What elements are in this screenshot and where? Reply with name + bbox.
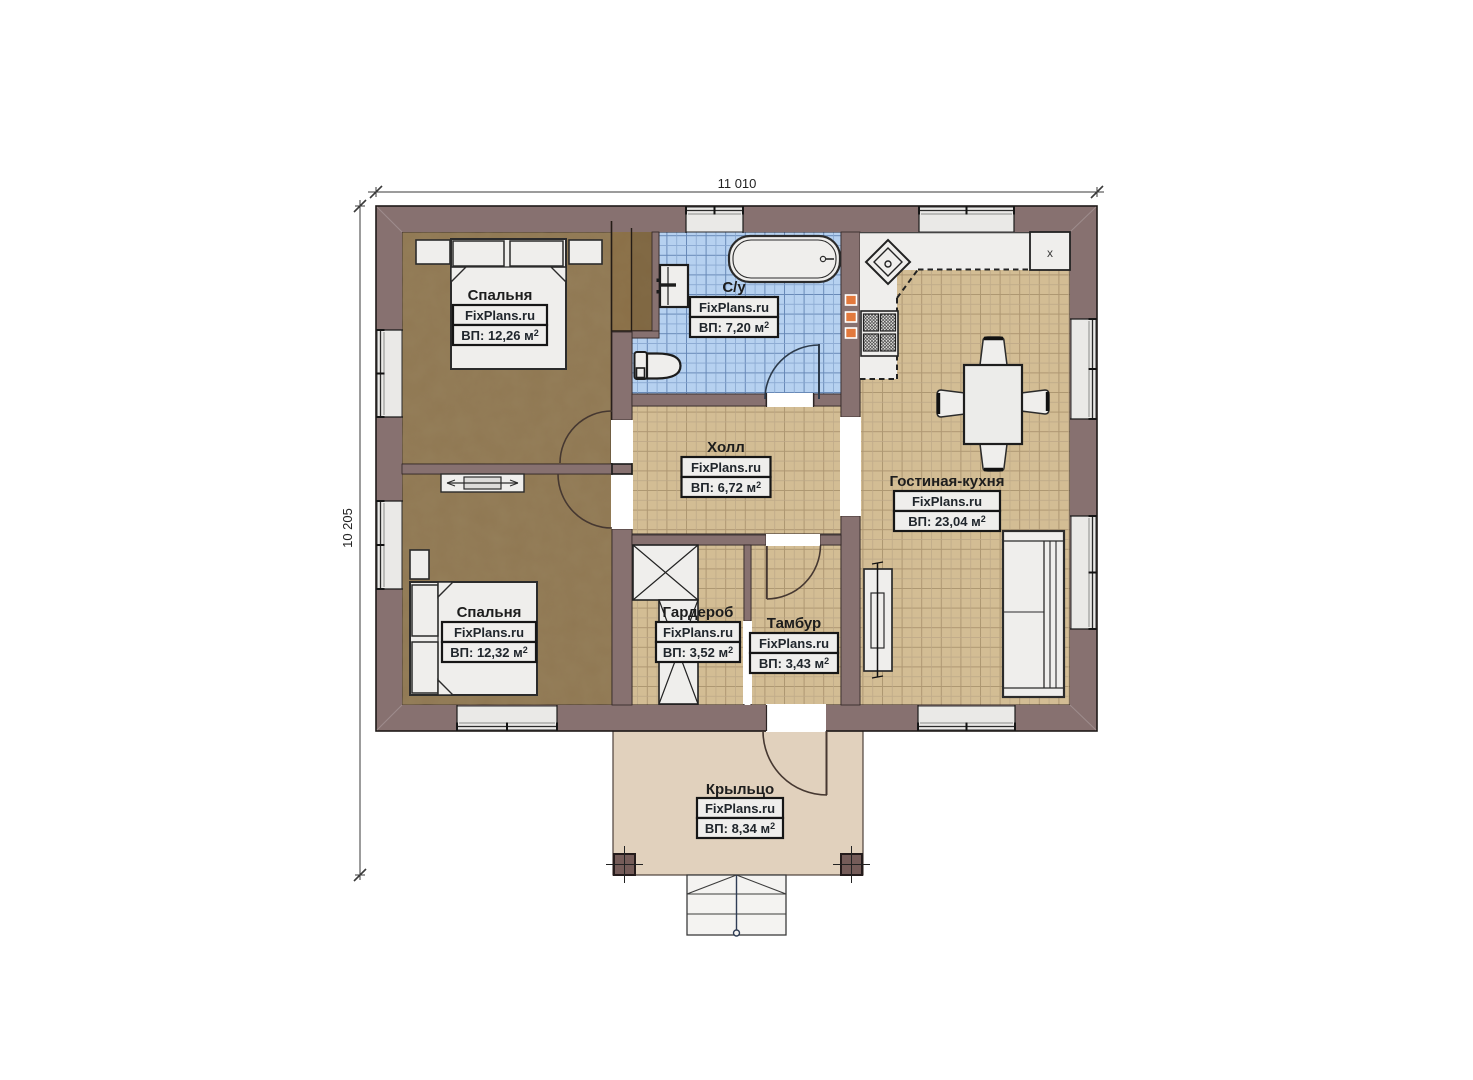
svg-text:Спальня: Спальня: [457, 604, 522, 621]
svg-text:Гостиная-кухня: Гостиная-кухня: [890, 473, 1005, 490]
svg-text:Спальня: Спальня: [468, 287, 533, 304]
svg-text:FixPlans.ru: FixPlans.ru: [663, 625, 733, 640]
svg-text:ВП: 3,52 м2: ВП: 3,52 м2: [663, 645, 733, 660]
svg-text:Тамбур: Тамбур: [767, 615, 821, 632]
svg-text:ВП: 12,26 м2: ВП: 12,26 м2: [461, 328, 538, 343]
svg-text:ВП: 6,72 м2: ВП: 6,72 м2: [691, 480, 761, 495]
svg-text:Холл: Холл: [707, 439, 745, 456]
svg-text:FixPlans.ru: FixPlans.ru: [705, 801, 775, 816]
svg-text:ВП: 8,34 м2: ВП: 8,34 м2: [705, 821, 775, 836]
svg-text:10 205: 10 205: [340, 508, 355, 548]
svg-text:ВП: 12,32 м2: ВП: 12,32 м2: [450, 645, 527, 660]
svg-text:Гардероб: Гардероб: [663, 604, 734, 621]
svg-text:x: x: [1047, 246, 1053, 260]
svg-text:FixPlans.ru: FixPlans.ru: [699, 300, 769, 315]
svg-text:11 010: 11 010: [718, 176, 757, 191]
svg-text:FixPlans.ru: FixPlans.ru: [454, 625, 524, 640]
svg-text:FixPlans.ru: FixPlans.ru: [691, 460, 761, 475]
svg-text:FixPlans.ru: FixPlans.ru: [465, 308, 535, 323]
svg-text:С/у: С/у: [722, 279, 746, 296]
svg-text:ВП: 23,04 м2: ВП: 23,04 м2: [908, 514, 985, 529]
svg-text:Крыльцо: Крыльцо: [706, 781, 774, 798]
svg-text:ВП: 3,43 м2: ВП: 3,43 м2: [759, 656, 829, 671]
svg-text:ВП: 7,20 м2: ВП: 7,20 м2: [699, 320, 769, 335]
svg-text:FixPlans.ru: FixPlans.ru: [759, 636, 829, 651]
svg-text:FixPlans.ru: FixPlans.ru: [912, 494, 982, 509]
